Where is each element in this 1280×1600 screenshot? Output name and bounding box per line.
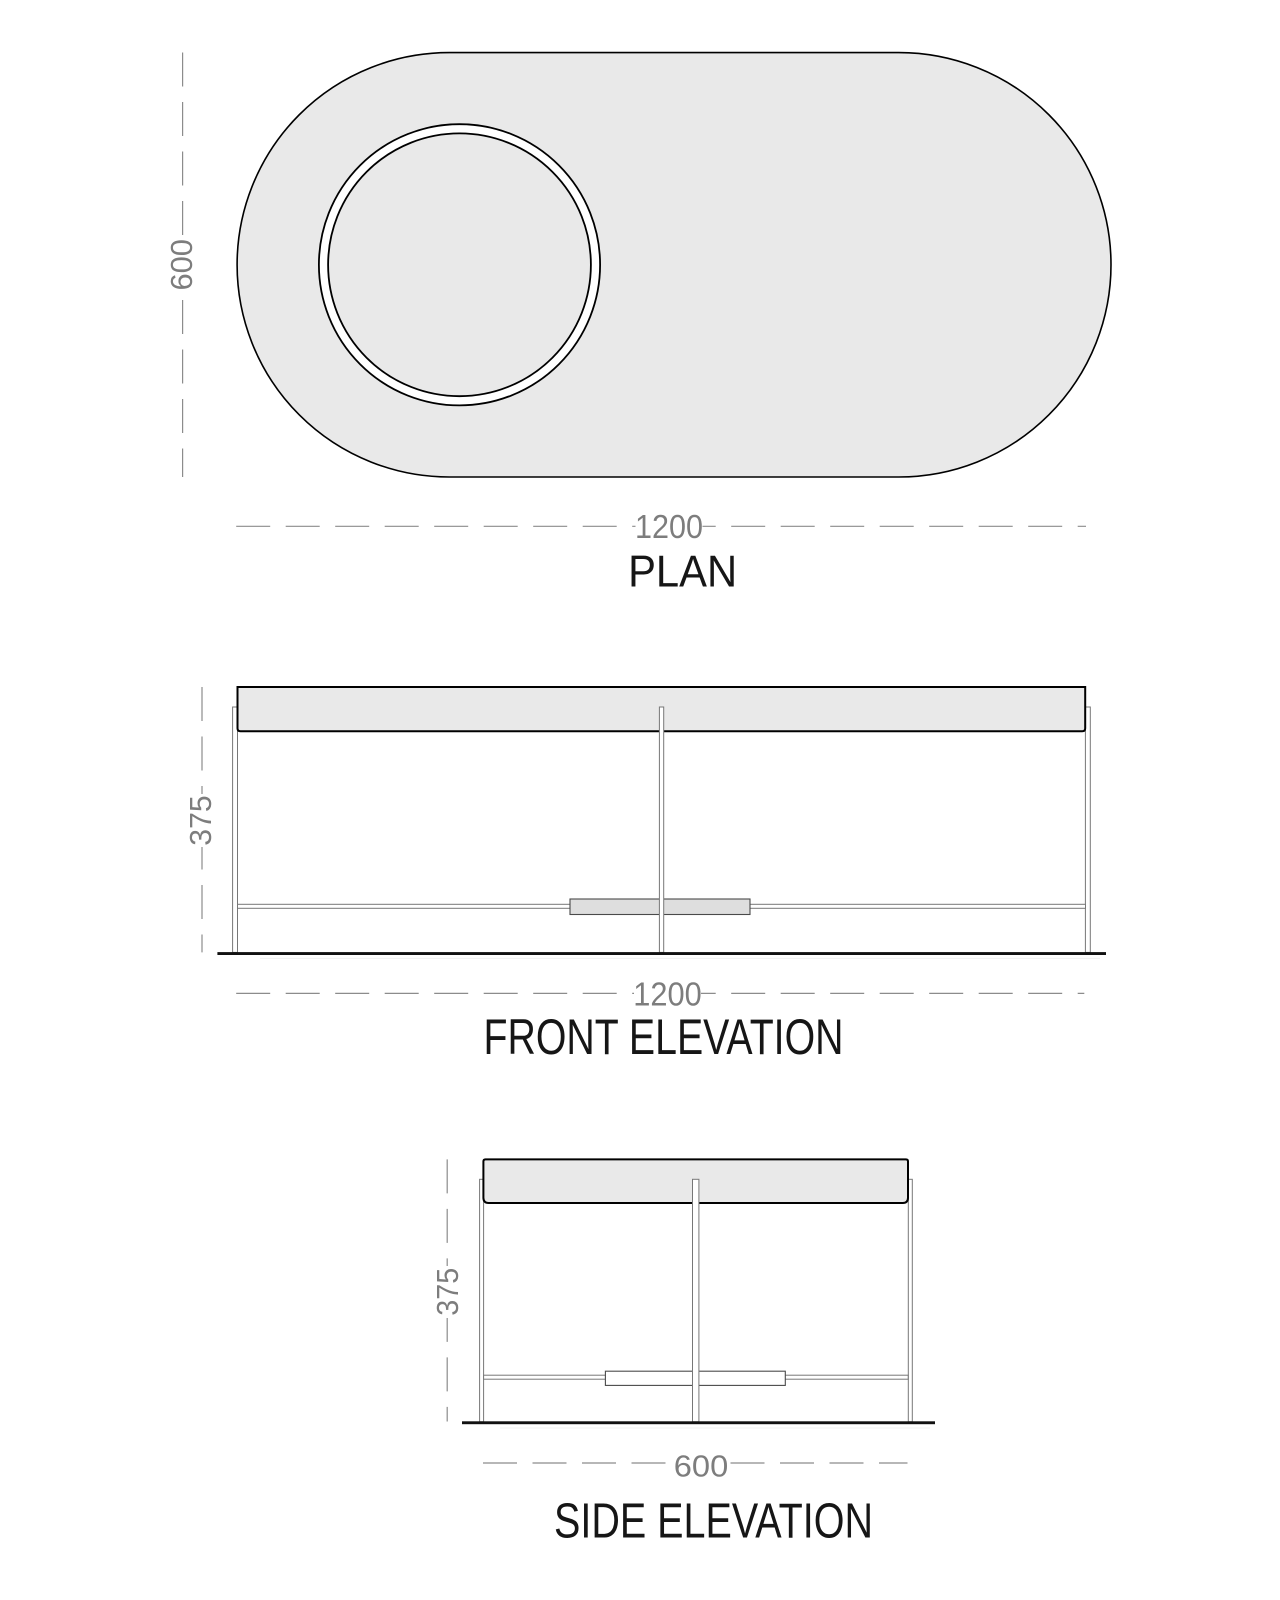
svg-text:600: 600 (165, 239, 199, 291)
svg-text:1200: 1200 (635, 508, 703, 545)
svg-text:PLAN: PLAN (628, 548, 737, 597)
svg-text:SIDE ELEVATION: SIDE ELEVATION (554, 1494, 873, 1549)
svg-text:FRONT ELEVATION: FRONT ELEVATION (484, 1009, 844, 1065)
svg-text:375: 375 (184, 795, 218, 846)
svg-text:375: 375 (431, 1268, 465, 1316)
svg-text:1200: 1200 (633, 975, 702, 1012)
svg-text:600: 600 (674, 1449, 729, 1484)
